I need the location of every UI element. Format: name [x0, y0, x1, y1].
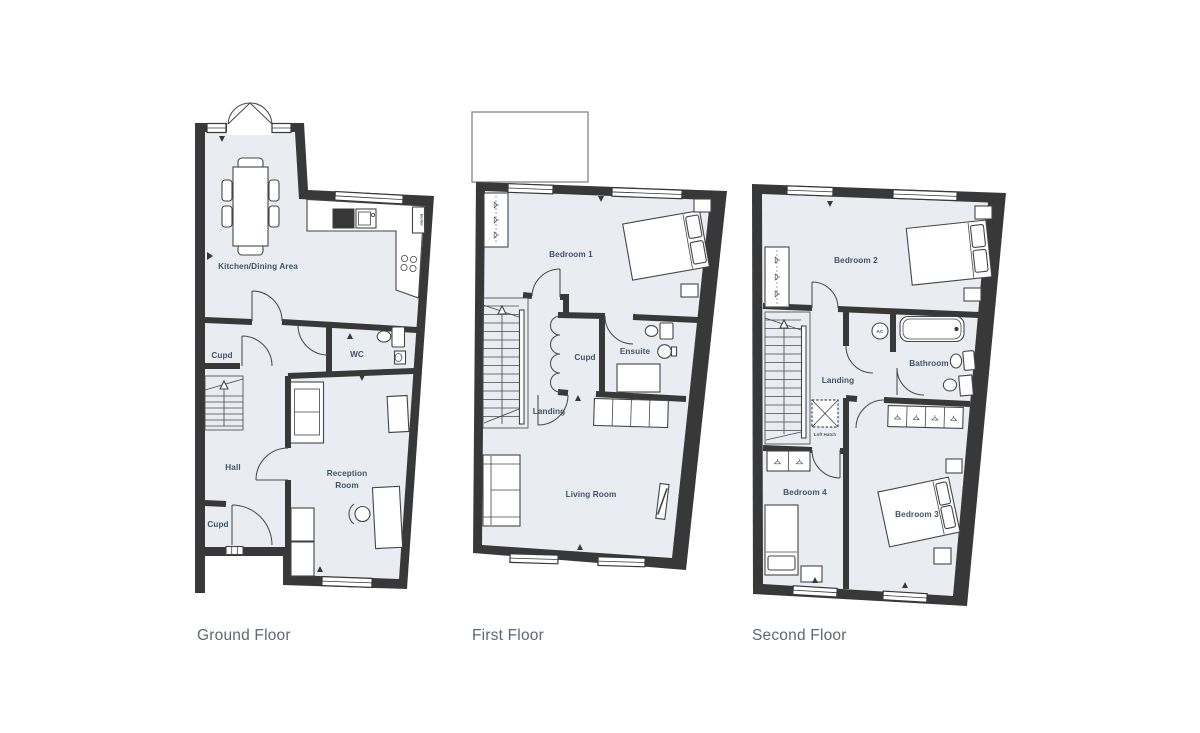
- desk: [372, 486, 402, 548]
- roof-outline: [472, 112, 588, 182]
- bedside-table: [964, 288, 981, 301]
- bedside-table: [934, 548, 951, 564]
- ac-label: AC: [876, 329, 884, 335]
- bedroom1-label: Bedroom 1: [549, 250, 593, 259]
- bedroom4-wardrobe: [767, 451, 810, 471]
- ground-floor-svg: Boiler: [185, 95, 445, 655]
- hall-vent: [226, 547, 243, 555]
- living-room-label: Living Room: [566, 490, 617, 499]
- bedside-table: [946, 459, 962, 473]
- side-cabinet: [387, 396, 409, 433]
- bedroom2-label: Bedroom 2: [834, 256, 878, 265]
- second-floor-plan: AC Loft Hatch: [740, 160, 1030, 635]
- first-floor-title: First Floor: [472, 627, 544, 645]
- bathroom-label: Bathroom: [909, 359, 948, 368]
- bedroom3-wardrobe: [888, 406, 964, 429]
- ensuite-label: Ensuite: [620, 347, 651, 356]
- storage-cabinets: [291, 508, 314, 576]
- airing-cupboard: AC: [872, 323, 888, 339]
- bedside-table: [975, 206, 992, 219]
- first-floor-svg: Bedroom 1 Cupd Ensuite Landing Living Ro…: [455, 95, 745, 655]
- bedside-table: [694, 199, 711, 212]
- sink-unit: [333, 209, 354, 228]
- entrance-opening: [227, 120, 273, 135]
- cupd-label: Cupd: [574, 353, 595, 362]
- reception-label-2: Room: [335, 481, 359, 490]
- bedside-table: [801, 566, 822, 582]
- wall-stub: [195, 556, 205, 593]
- first-floor-plan: Bedroom 1 Cupd Ensuite Landing Living Ro…: [455, 95, 745, 660]
- floorplan-sheet: Boiler: [0, 0, 1200, 733]
- sideboard: [594, 398, 669, 427]
- loft-hatch: Loft Hatch: [812, 400, 838, 437]
- hall-label: Hall: [225, 463, 240, 472]
- ground-floor-plan: Boiler: [185, 95, 445, 660]
- ground-floor-title: Ground Floor: [197, 627, 291, 645]
- bedside-table: [681, 284, 698, 297]
- kitchen-sink: [356, 209, 376, 228]
- cupd-upper-label: Cupd: [211, 351, 232, 360]
- second-floor-title: Second Floor: [752, 627, 847, 645]
- wc-label: WC: [350, 350, 364, 359]
- second-floor-svg: AC Loft Hatch: [740, 160, 1030, 630]
- sofa: [483, 455, 520, 526]
- bedroom3-label: Bedroom 3: [895, 510, 939, 519]
- landing-label: Landing: [533, 407, 566, 416]
- cupd-lower-label: Cupd: [207, 520, 228, 529]
- boiler-label: Boiler: [420, 214, 425, 226]
- reception-label-1: Reception: [327, 469, 367, 478]
- kitchen-label: Kitchen/Dining Area: [218, 262, 298, 271]
- landing-label: Landing: [822, 376, 855, 385]
- bedroom4-label: Bedroom 4: [783, 488, 827, 497]
- bedroom1-wardrobe: [484, 193, 508, 247]
- shower-tray: [617, 364, 660, 392]
- loft-hatch-label: Loft Hatch: [814, 432, 837, 437]
- boiler: Boiler: [413, 207, 425, 233]
- bookcase: [291, 382, 324, 443]
- bedroom2-wardrobe: [765, 247, 789, 307]
